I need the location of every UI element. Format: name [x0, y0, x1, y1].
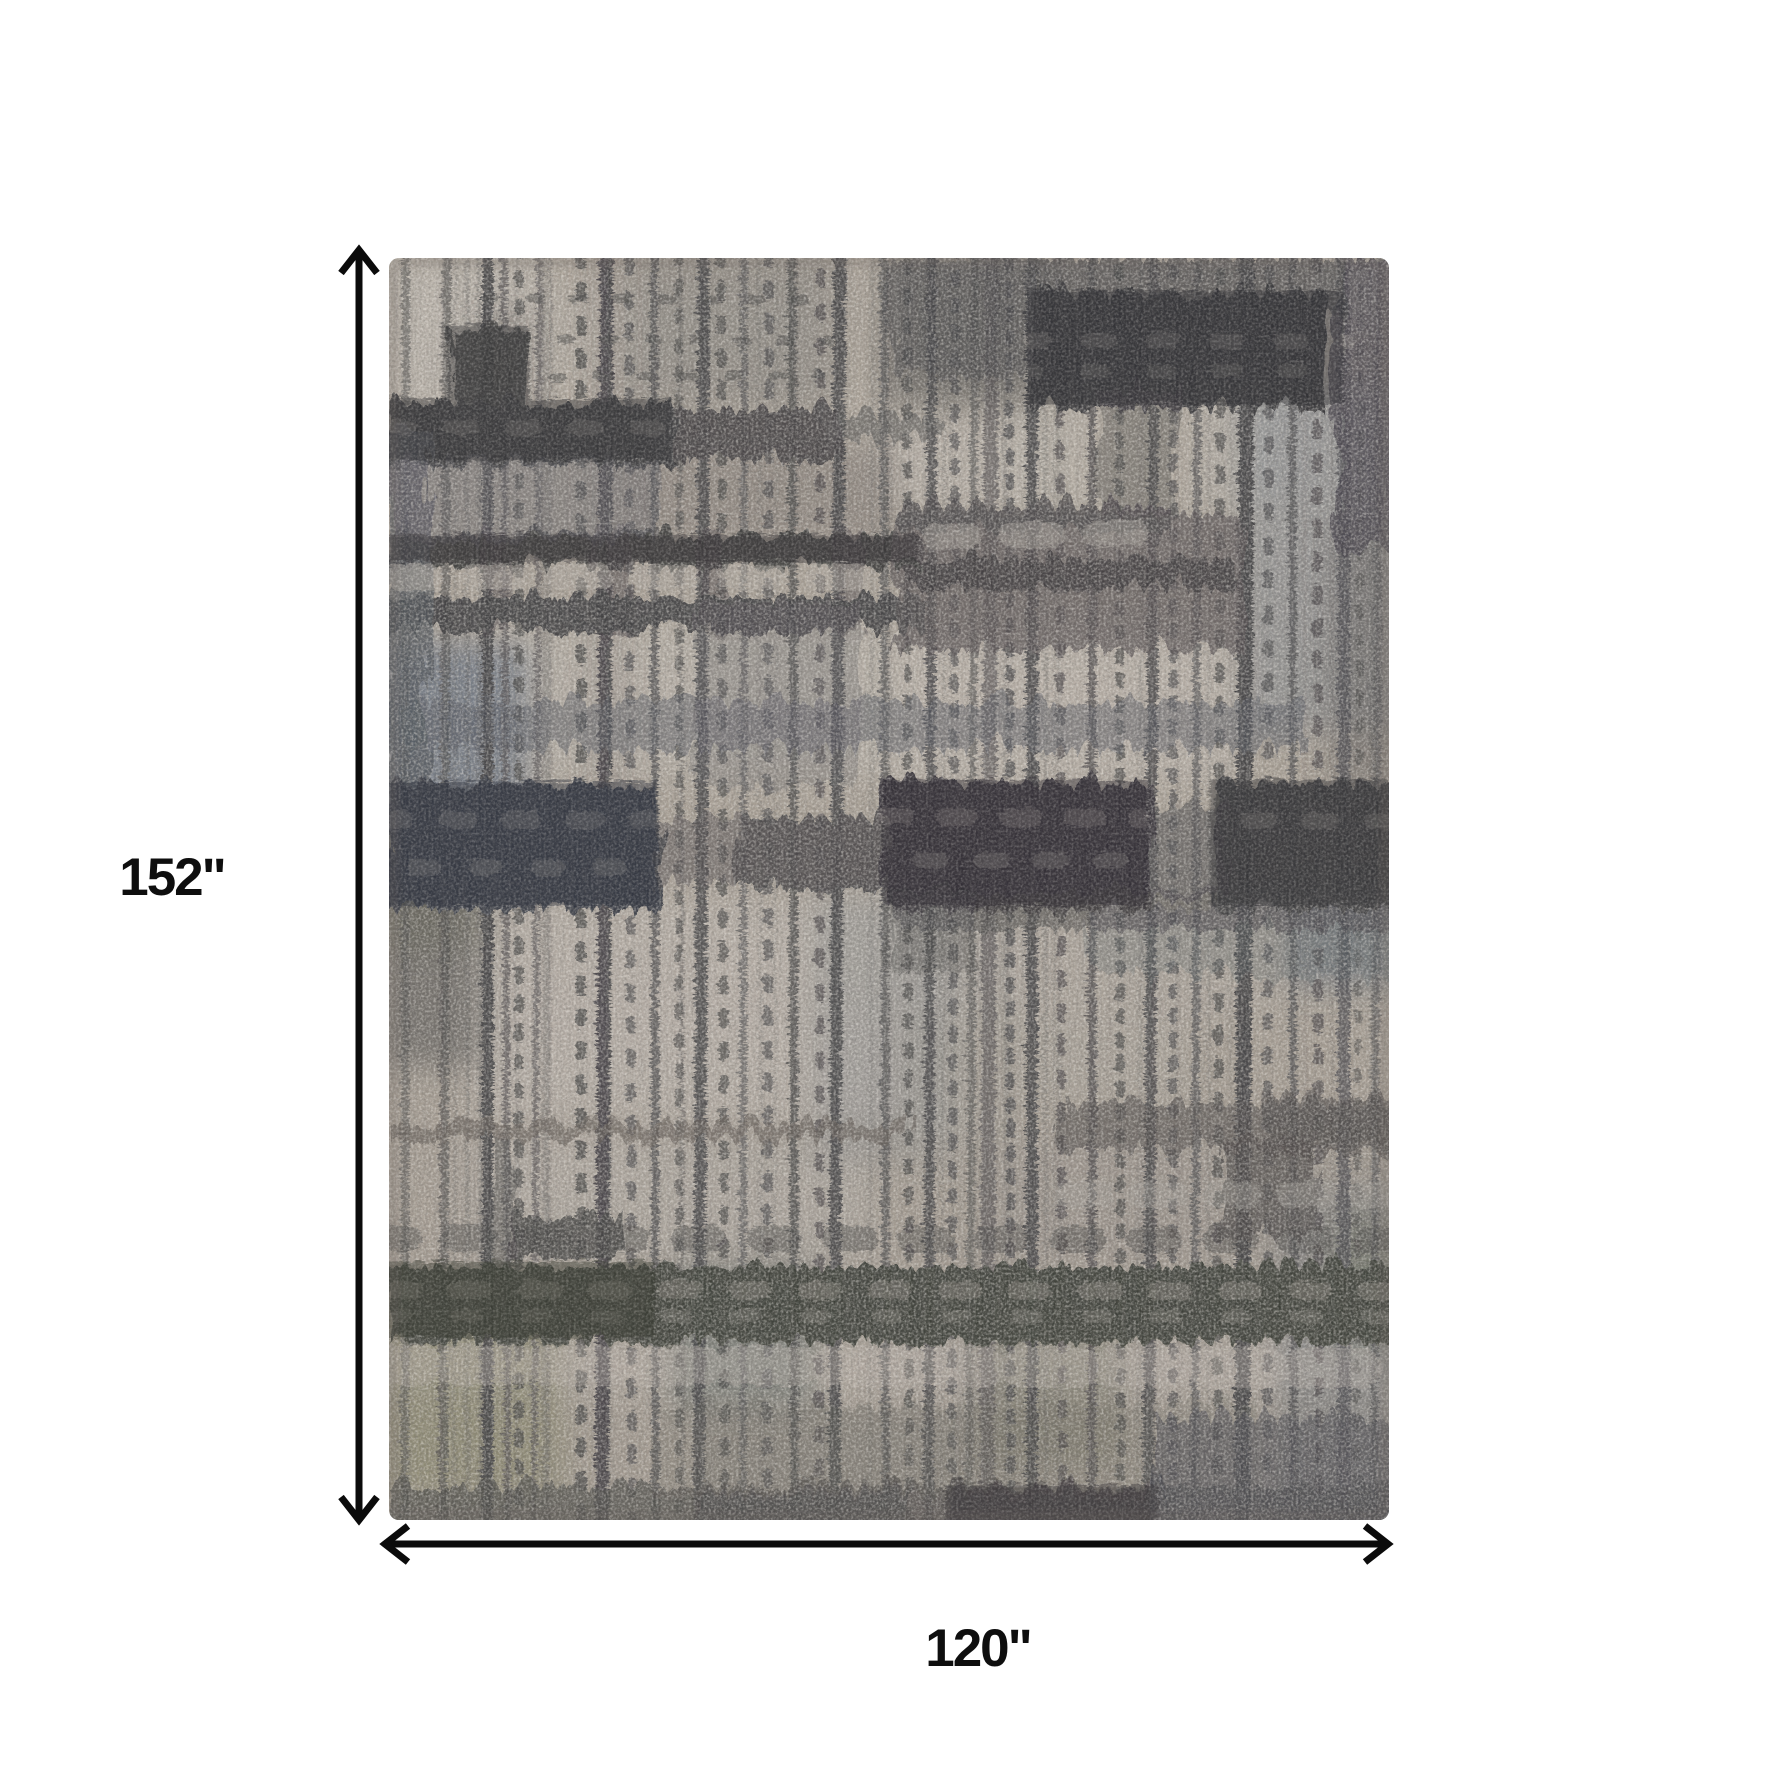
svg-text:120": 120": [925, 1619, 1031, 1678]
svg-text:152": 152": [119, 848, 225, 907]
